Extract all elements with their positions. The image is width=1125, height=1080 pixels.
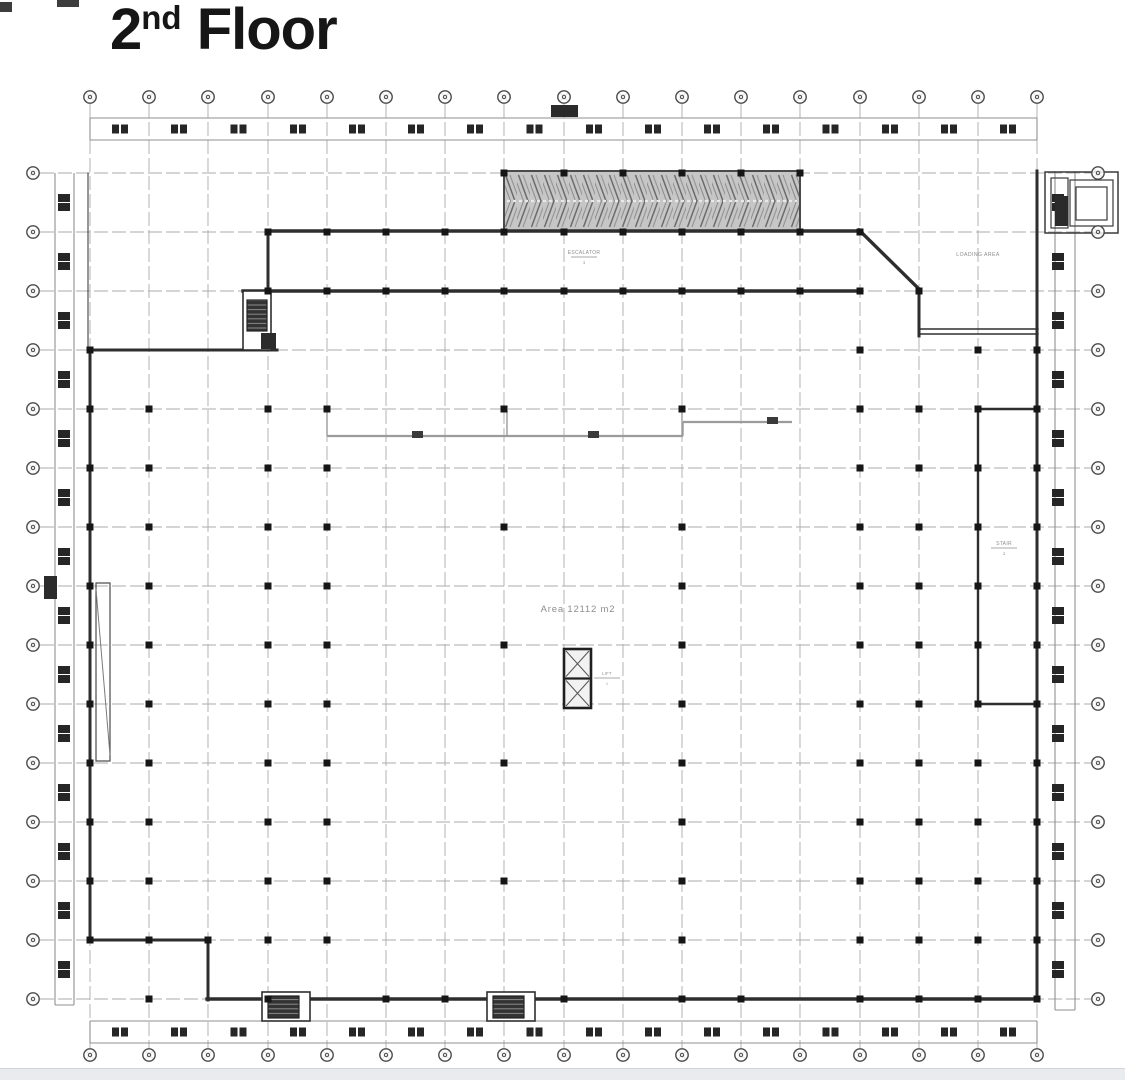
column-dot — [324, 465, 331, 472]
entry-marker — [44, 576, 57, 599]
column-dot — [501, 406, 508, 413]
perimeter-column — [58, 784, 70, 792]
column-dot — [1034, 465, 1041, 472]
grid-bubble — [1092, 521, 1104, 533]
column-dot — [1034, 760, 1041, 767]
perimeter-column — [1052, 262, 1064, 270]
perimeter-column — [1052, 734, 1064, 742]
lift-shaft — [564, 649, 591, 708]
column-dot — [679, 229, 686, 236]
column-dot — [1034, 524, 1041, 531]
grid-bubble — [27, 521, 39, 533]
column-dot — [857, 524, 864, 531]
perimeter-column — [408, 125, 415, 134]
column-dot — [975, 878, 982, 885]
stair-room-tag-text: STAIR — [996, 541, 1012, 547]
perimeter-column — [58, 439, 70, 447]
grid-bubble — [1092, 757, 1104, 769]
perimeter-column — [121, 125, 128, 134]
grid-bubble — [1092, 285, 1104, 297]
column-dot — [265, 288, 272, 295]
perimeter-column — [58, 380, 70, 388]
perimeter-column — [1052, 970, 1064, 978]
grid-bubble — [735, 91, 747, 103]
column-dot — [975, 760, 982, 767]
grid-bubble — [854, 91, 866, 103]
grid-bubble — [27, 462, 39, 474]
perimeter-column — [290, 125, 297, 134]
perimeter-column — [58, 970, 70, 978]
grid-bubble — [558, 1049, 570, 1061]
perimeter-column — [1052, 607, 1064, 615]
perimeter-column — [58, 498, 70, 506]
grid-bubble — [794, 1049, 806, 1061]
partition-tick — [767, 417, 778, 424]
perimeter-column — [58, 321, 70, 329]
column-dot — [265, 701, 272, 708]
column-dot — [87, 406, 94, 413]
perimeter-column — [1052, 548, 1064, 556]
perimeter-column — [349, 1028, 356, 1037]
grid-bubble — [321, 1049, 333, 1061]
perimeter-column — [704, 1028, 711, 1037]
grid-bubble — [27, 816, 39, 828]
area-label: Area 12112 m2 — [541, 604, 616, 615]
grid-bubble — [380, 91, 392, 103]
perimeter-column — [121, 1028, 128, 1037]
column-dot — [324, 229, 331, 236]
perimeter-column — [882, 125, 889, 134]
grid-bubble — [321, 91, 333, 103]
perimeter-column — [536, 1028, 543, 1037]
column-dot — [679, 524, 686, 531]
column-dot — [1034, 819, 1041, 826]
grid-bubble — [794, 91, 806, 103]
column-dot — [87, 760, 94, 767]
grid-bubble — [439, 91, 451, 103]
perimeter-column — [58, 961, 70, 969]
perimeter-column — [358, 1028, 365, 1037]
grid-bubble — [498, 1049, 510, 1061]
grid-bubble — [202, 1049, 214, 1061]
perimeter-column — [58, 911, 70, 919]
column-dot — [738, 170, 745, 177]
column-dot — [975, 642, 982, 649]
grid-bubble — [1092, 344, 1104, 356]
grid-bubble — [27, 698, 39, 710]
perimeter-column — [950, 125, 957, 134]
perimeter-column — [772, 1028, 779, 1037]
column-dot — [1034, 583, 1041, 590]
lift-tag-text: LIFT — [602, 671, 612, 676]
column-dot — [265, 878, 272, 885]
perimeter-column — [408, 1028, 415, 1037]
perimeter-column — [58, 675, 70, 683]
perimeter-column — [231, 1028, 238, 1037]
column-dot — [679, 288, 686, 295]
column-dot — [857, 996, 864, 1003]
perimeter-column — [941, 1028, 948, 1037]
column-dot — [857, 347, 864, 354]
perimeter-column — [231, 125, 238, 134]
column-dot — [857, 819, 864, 826]
column-dot — [738, 229, 745, 236]
perimeter-column — [891, 1028, 898, 1037]
perimeter-column — [299, 125, 306, 134]
perimeter-column — [1000, 125, 1007, 134]
footer-bar — [0, 1068, 1125, 1080]
grid-bubble — [735, 1049, 747, 1061]
column-dot — [383, 288, 390, 295]
column-dot — [975, 583, 982, 590]
screenshot-artifact — [0, 2, 12, 12]
column-dot — [146, 701, 153, 708]
stair-core-bottom-2-treads — [493, 996, 524, 1018]
perimeter-column — [58, 666, 70, 674]
column-dot — [561, 996, 568, 1003]
perimeter-column — [112, 1028, 119, 1037]
perimeter-column — [58, 725, 70, 733]
grid-bubble — [27, 285, 39, 297]
grid-bubble — [972, 1049, 984, 1061]
column-dot — [797, 288, 804, 295]
perimeter-column — [763, 125, 770, 134]
column-dot — [679, 760, 686, 767]
perimeter-column — [476, 1028, 483, 1037]
column-dot — [87, 878, 94, 885]
column-dot — [679, 819, 686, 826]
perimeter-column — [1052, 430, 1064, 438]
grid-bubble — [27, 403, 39, 415]
perimeter-column — [941, 125, 948, 134]
perimeter-column — [180, 1028, 187, 1037]
column-dot — [916, 288, 923, 295]
perimeter-column — [1052, 902, 1064, 910]
column-dot — [738, 288, 745, 295]
column-dot — [501, 760, 508, 767]
perimeter-column — [467, 1028, 474, 1037]
perimeter-column — [58, 843, 70, 851]
perimeter-column — [1052, 843, 1064, 851]
perimeter-column — [58, 430, 70, 438]
grid-bubble — [913, 91, 925, 103]
column-dot — [620, 288, 627, 295]
grid-bubble — [1092, 875, 1104, 887]
column-dot — [1034, 406, 1041, 413]
perimeter-column — [58, 616, 70, 624]
floor-title-text: Floor — [182, 0, 337, 62]
perimeter-column — [654, 125, 661, 134]
grid-bubble — [676, 91, 688, 103]
column-dot — [146, 642, 153, 649]
column-dot — [146, 878, 153, 885]
column-dot — [916, 583, 923, 590]
grid-bubble — [1092, 462, 1104, 474]
column-dot — [1034, 937, 1041, 944]
grid-bubble — [27, 757, 39, 769]
perimeter-column — [58, 253, 70, 261]
column-dot — [442, 229, 449, 236]
perimeter-column — [58, 548, 70, 556]
grid-bubble — [1031, 1049, 1043, 1061]
column-dot — [205, 937, 212, 944]
perimeter-column — [645, 125, 652, 134]
grid-bubble — [913, 1049, 925, 1061]
perimeter-column — [58, 557, 70, 565]
perimeter-column — [713, 125, 720, 134]
column-dot — [501, 229, 508, 236]
grid-bubble — [1092, 403, 1104, 415]
column-dot — [87, 465, 94, 472]
perimeter-column — [1052, 557, 1064, 565]
perimeter-column — [290, 1028, 297, 1037]
perimeter-column — [171, 125, 178, 134]
column-dot — [442, 996, 449, 1003]
column-dot — [146, 524, 153, 531]
column-dot — [324, 760, 331, 767]
perimeter-column — [58, 734, 70, 742]
grid-bubble — [27, 344, 39, 356]
column-dot — [679, 937, 686, 944]
grid-bubble — [380, 1049, 392, 1061]
perimeter-column — [58, 203, 70, 211]
perimeter-column — [527, 1028, 534, 1037]
grid-bubble — [27, 639, 39, 651]
column-dot — [265, 760, 272, 767]
column-dot — [1034, 878, 1041, 885]
grid-bubble — [439, 1049, 451, 1061]
column-dot — [324, 819, 331, 826]
perimeter-column — [595, 1028, 602, 1037]
perimeter-column — [358, 125, 365, 134]
grid-bubble — [972, 91, 984, 103]
column-dot — [561, 288, 568, 295]
partition-tick — [412, 431, 423, 438]
grid-bubble — [27, 934, 39, 946]
column-dot — [857, 465, 864, 472]
perimeter-column — [240, 1028, 247, 1037]
grid-bubble — [1092, 639, 1104, 651]
perimeter-column — [349, 125, 356, 134]
partition-tick — [588, 431, 599, 438]
loading-area-label: LOADING AREA — [956, 252, 1000, 258]
floor-plan-document: Area 12112 m2LOADING AREAESCALATOR1STAIR… — [0, 0, 1125, 1080]
column-dot — [146, 583, 153, 590]
column-dot — [1034, 996, 1041, 1003]
column-dot — [857, 701, 864, 708]
lift-tag-number: 1 — [606, 682, 608, 686]
perimeter-column — [1052, 725, 1064, 733]
column-dot — [679, 642, 686, 649]
column-dot — [324, 524, 331, 531]
column-dot — [916, 760, 923, 767]
column-dot — [87, 937, 94, 944]
grid-bubble — [854, 1049, 866, 1061]
column-dot — [916, 996, 923, 1003]
perimeter-column — [240, 125, 247, 134]
column-dot — [146, 406, 153, 413]
perimeter-column — [1009, 125, 1016, 134]
column-dot — [1034, 347, 1041, 354]
column-dot — [87, 642, 94, 649]
perimeter-column — [58, 902, 70, 910]
column-dot — [679, 406, 686, 413]
column-dot — [857, 288, 864, 295]
column-dot — [501, 524, 508, 531]
column-dot — [146, 937, 153, 944]
column-dot — [146, 760, 153, 767]
column-dot — [324, 701, 331, 708]
column-dot — [1034, 642, 1041, 649]
column-dot — [857, 642, 864, 649]
column-dot — [383, 996, 390, 1003]
column-dot — [916, 878, 923, 885]
escalator-tag-text: ESCALATOR — [568, 250, 601, 256]
grid-bubble — [262, 91, 274, 103]
perimeter-column — [1052, 371, 1064, 379]
column-dot — [975, 937, 982, 944]
column-dot — [87, 701, 94, 708]
perimeter-column — [299, 1028, 306, 1037]
perimeter-column — [58, 262, 70, 270]
column-dot — [738, 996, 745, 1003]
column-dot — [324, 878, 331, 885]
column-dot — [265, 996, 272, 1003]
perimeter-column — [1052, 312, 1064, 320]
column-dot — [146, 996, 153, 1003]
perimeter-column — [704, 125, 711, 134]
perimeter-column — [772, 125, 779, 134]
grid-bubble — [676, 1049, 688, 1061]
stair-landing — [261, 333, 276, 349]
grid-bubble — [143, 1049, 155, 1061]
column-dot — [797, 229, 804, 236]
column-dot — [679, 878, 686, 885]
grid-bubble — [27, 875, 39, 887]
column-dot — [679, 170, 686, 177]
grid-bubble — [1092, 226, 1104, 238]
column-dot — [324, 288, 331, 295]
stair-core-bottom-1-treads — [268, 996, 299, 1018]
perimeter-column — [823, 125, 830, 134]
column-dot — [797, 170, 804, 177]
grid-bubble — [1031, 91, 1043, 103]
grid-bubble — [1092, 934, 1104, 946]
grid-bubble — [1092, 816, 1104, 828]
column-dot — [975, 347, 982, 354]
grid-bubble — [1092, 167, 1104, 179]
screenshot-artifact — [57, 0, 79, 7]
perimeter-column — [58, 371, 70, 379]
column-dot — [324, 937, 331, 944]
grid-bubble — [617, 91, 629, 103]
floor-title-ordinal: nd — [141, 0, 181, 36]
perimeter-column — [417, 125, 424, 134]
perimeter-column — [1052, 784, 1064, 792]
column-dot — [975, 524, 982, 531]
column-dot — [265, 465, 272, 472]
column-dot — [87, 819, 94, 826]
perimeter-column — [58, 194, 70, 202]
perimeter-column — [1052, 616, 1064, 624]
perimeter-column — [1052, 321, 1064, 329]
grid-bubble — [84, 1049, 96, 1061]
paper-background — [0, 0, 1125, 1080]
column-dot — [87, 524, 94, 531]
perimeter-column — [1052, 852, 1064, 860]
column-dot — [916, 465, 923, 472]
perimeter-column — [950, 1028, 957, 1037]
perimeter-column — [417, 1028, 424, 1037]
column-dot — [146, 819, 153, 826]
perimeter-column — [1052, 961, 1064, 969]
perimeter-column — [891, 125, 898, 134]
column-dot — [857, 760, 864, 767]
perimeter-column — [467, 125, 474, 134]
perimeter-column — [1052, 489, 1064, 497]
grid-bubble — [262, 1049, 274, 1061]
floor-plan-canvas: Area 12112 m2LOADING AREAESCALATOR1STAIR… — [0, 0, 1125, 1080]
column-dot — [620, 170, 627, 177]
perimeter-column — [823, 1028, 830, 1037]
column-dot — [501, 288, 508, 295]
grid-bubble — [1092, 698, 1104, 710]
floor-title-number: 2 — [110, 0, 141, 62]
perimeter-column — [645, 1028, 652, 1037]
perimeter-column — [58, 489, 70, 497]
grid-bubble — [84, 91, 96, 103]
perimeter-column — [1000, 1028, 1007, 1037]
column-dot — [324, 583, 331, 590]
column-dot — [857, 229, 864, 236]
perimeter-column — [58, 607, 70, 615]
column-dot — [916, 406, 923, 413]
column-dot — [975, 701, 982, 708]
grid-bubble — [558, 91, 570, 103]
perimeter-column — [882, 1028, 889, 1037]
column-dot — [620, 229, 627, 236]
column-dot — [87, 583, 94, 590]
column-dot — [561, 229, 568, 236]
perimeter-column — [1052, 793, 1064, 801]
column-dot — [975, 406, 982, 413]
perimeter-column — [713, 1028, 720, 1037]
perimeter-column — [1052, 439, 1064, 447]
column-dot — [975, 996, 982, 1003]
column-dot — [442, 288, 449, 295]
column-dot — [265, 642, 272, 649]
grid-bubble — [27, 580, 39, 592]
column-dot — [916, 937, 923, 944]
column-dot — [857, 937, 864, 944]
perimeter-column — [171, 1028, 178, 1037]
column-dot — [324, 642, 331, 649]
grid-bubble — [1092, 993, 1104, 1005]
column-dot — [857, 583, 864, 590]
grid-bubble — [617, 1049, 629, 1061]
stair-core-topleft-treads — [247, 300, 267, 331]
column-dot — [679, 583, 686, 590]
perimeter-column — [527, 125, 534, 134]
column-dot — [916, 701, 923, 708]
perimeter-column — [58, 312, 70, 320]
perimeter-column — [180, 125, 187, 134]
perimeter-column — [1052, 666, 1064, 674]
perimeter-column — [1052, 911, 1064, 919]
grid-bubble — [27, 167, 39, 179]
column-dot — [501, 878, 508, 885]
grid-bubble — [27, 993, 39, 1005]
